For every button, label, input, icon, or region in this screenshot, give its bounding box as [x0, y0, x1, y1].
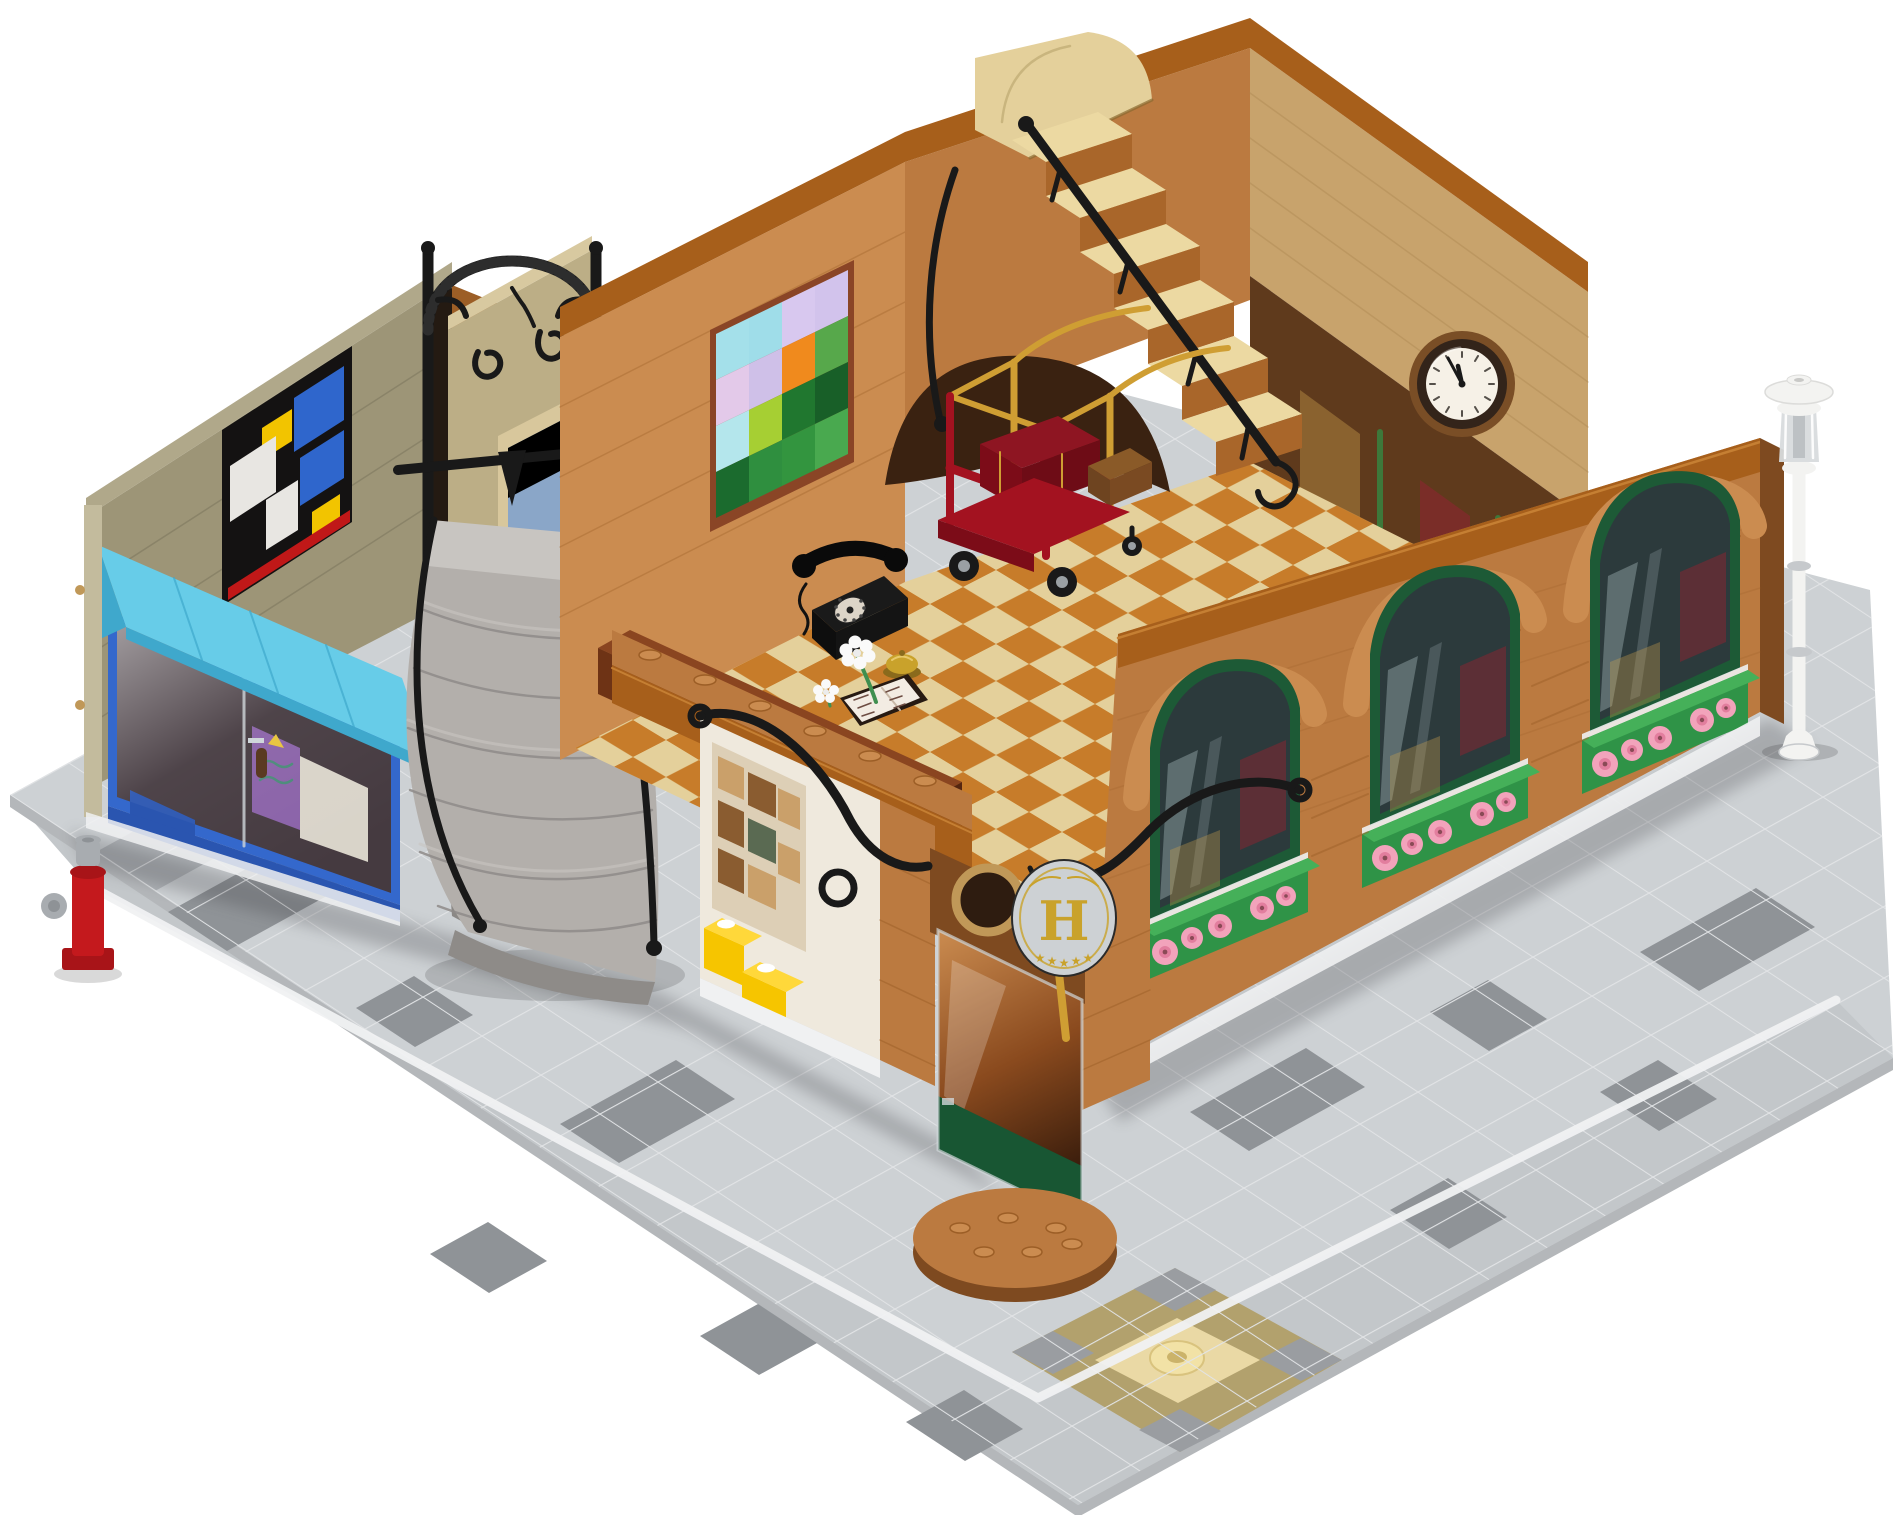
entrance-step — [913, 1188, 1117, 1302]
svg-text:★: ★ — [1071, 954, 1082, 968]
wall-clock — [1409, 331, 1515, 437]
hydrant-body — [72, 870, 104, 956]
lego-scene: H ★ ★ ★ ★ ★ — [0, 0, 1900, 1515]
arch-finial — [589, 241, 603, 255]
pole-collar — [1786, 647, 1812, 657]
hotel-sign: H ★ ★ ★ ★ ★ — [1012, 860, 1116, 976]
lamp-base — [1779, 744, 1819, 760]
svg-text:★: ★ — [1059, 956, 1070, 970]
lantern-dark-hint — [1793, 412, 1805, 458]
door-hinge — [942, 1098, 954, 1105]
svg-text:★: ★ — [1047, 954, 1058, 968]
product-photo: H ★ ★ ★ ★ ★ — [0, 0, 1900, 1515]
half-round-step — [913, 1188, 1117, 1288]
brass-pin — [75, 700, 85, 710]
arch-finial — [421, 241, 435, 255]
lamp-cup — [1782, 461, 1816, 475]
door-latch — [248, 738, 264, 743]
pole-collar — [1787, 561, 1811, 571]
brass-pin — [75, 585, 85, 595]
door-handle-brown — [256, 748, 267, 778]
facade-side-edge — [1760, 438, 1784, 724]
gallery-corner-trim — [84, 505, 102, 817]
svg-text:★: ★ — [1083, 951, 1094, 965]
railing-knob — [473, 919, 487, 933]
svg-text:★: ★ — [1035, 951, 1046, 965]
sign-letter: H — [1038, 889, 1089, 953]
railing-knob — [646, 940, 662, 956]
